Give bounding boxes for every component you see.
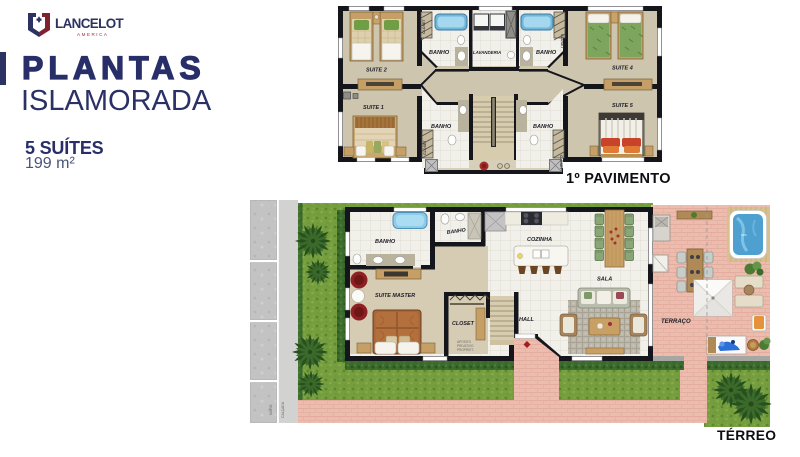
svg-text:1º PAVIMENTO: 1º PAVIMENTO [566,171,671,187]
svg-text:SUITE 5: SUITE 5 [612,103,634,109]
svg-text:PROPRIET.: PROPRIET. [457,348,474,352]
svg-text:BANHO: BANHO [375,239,396,245]
svg-text:BANHO: BANHO [536,50,557,56]
svg-text:CLOSET: CLOSET [559,155,563,170]
svg-text:SUITE 4: SUITE 4 [612,66,633,72]
svg-text:CLOSET: CLOSET [560,34,564,49]
svg-text:LAVANDERIA: LAVANDERIA [473,50,501,55]
svg-text:BANHO: BANHO [533,124,554,130]
svg-text:SUITE 1: SUITE 1 [363,105,384,111]
svg-text:HALL: HALL [519,317,534,323]
svg-text:SALA: SALA [597,277,612,283]
svg-text:CLOSET: CLOSET [452,321,475,327]
svg-text:BANHO: BANHO [431,124,452,130]
svg-text:CLOSET: CLOSET [423,140,427,155]
svg-text:SUITE MASTER: SUITE MASTER [375,293,415,299]
svg-text:BANHO: BANHO [429,50,450,56]
svg-text:TÉRREO: TÉRREO [717,427,776,443]
svg-text:CLOSET: CLOSET [422,19,426,34]
svg-text:MURO: MURO [269,404,273,415]
svg-text:CALÇADA: CALÇADA [281,401,285,418]
svg-text:COZINHA: COZINHA [527,237,552,243]
svg-text:SPA: SPA [741,233,747,237]
svg-text:TERRAÇO: TERRAÇO [661,319,691,325]
svg-text:SUITE 2: SUITE 2 [366,68,387,74]
